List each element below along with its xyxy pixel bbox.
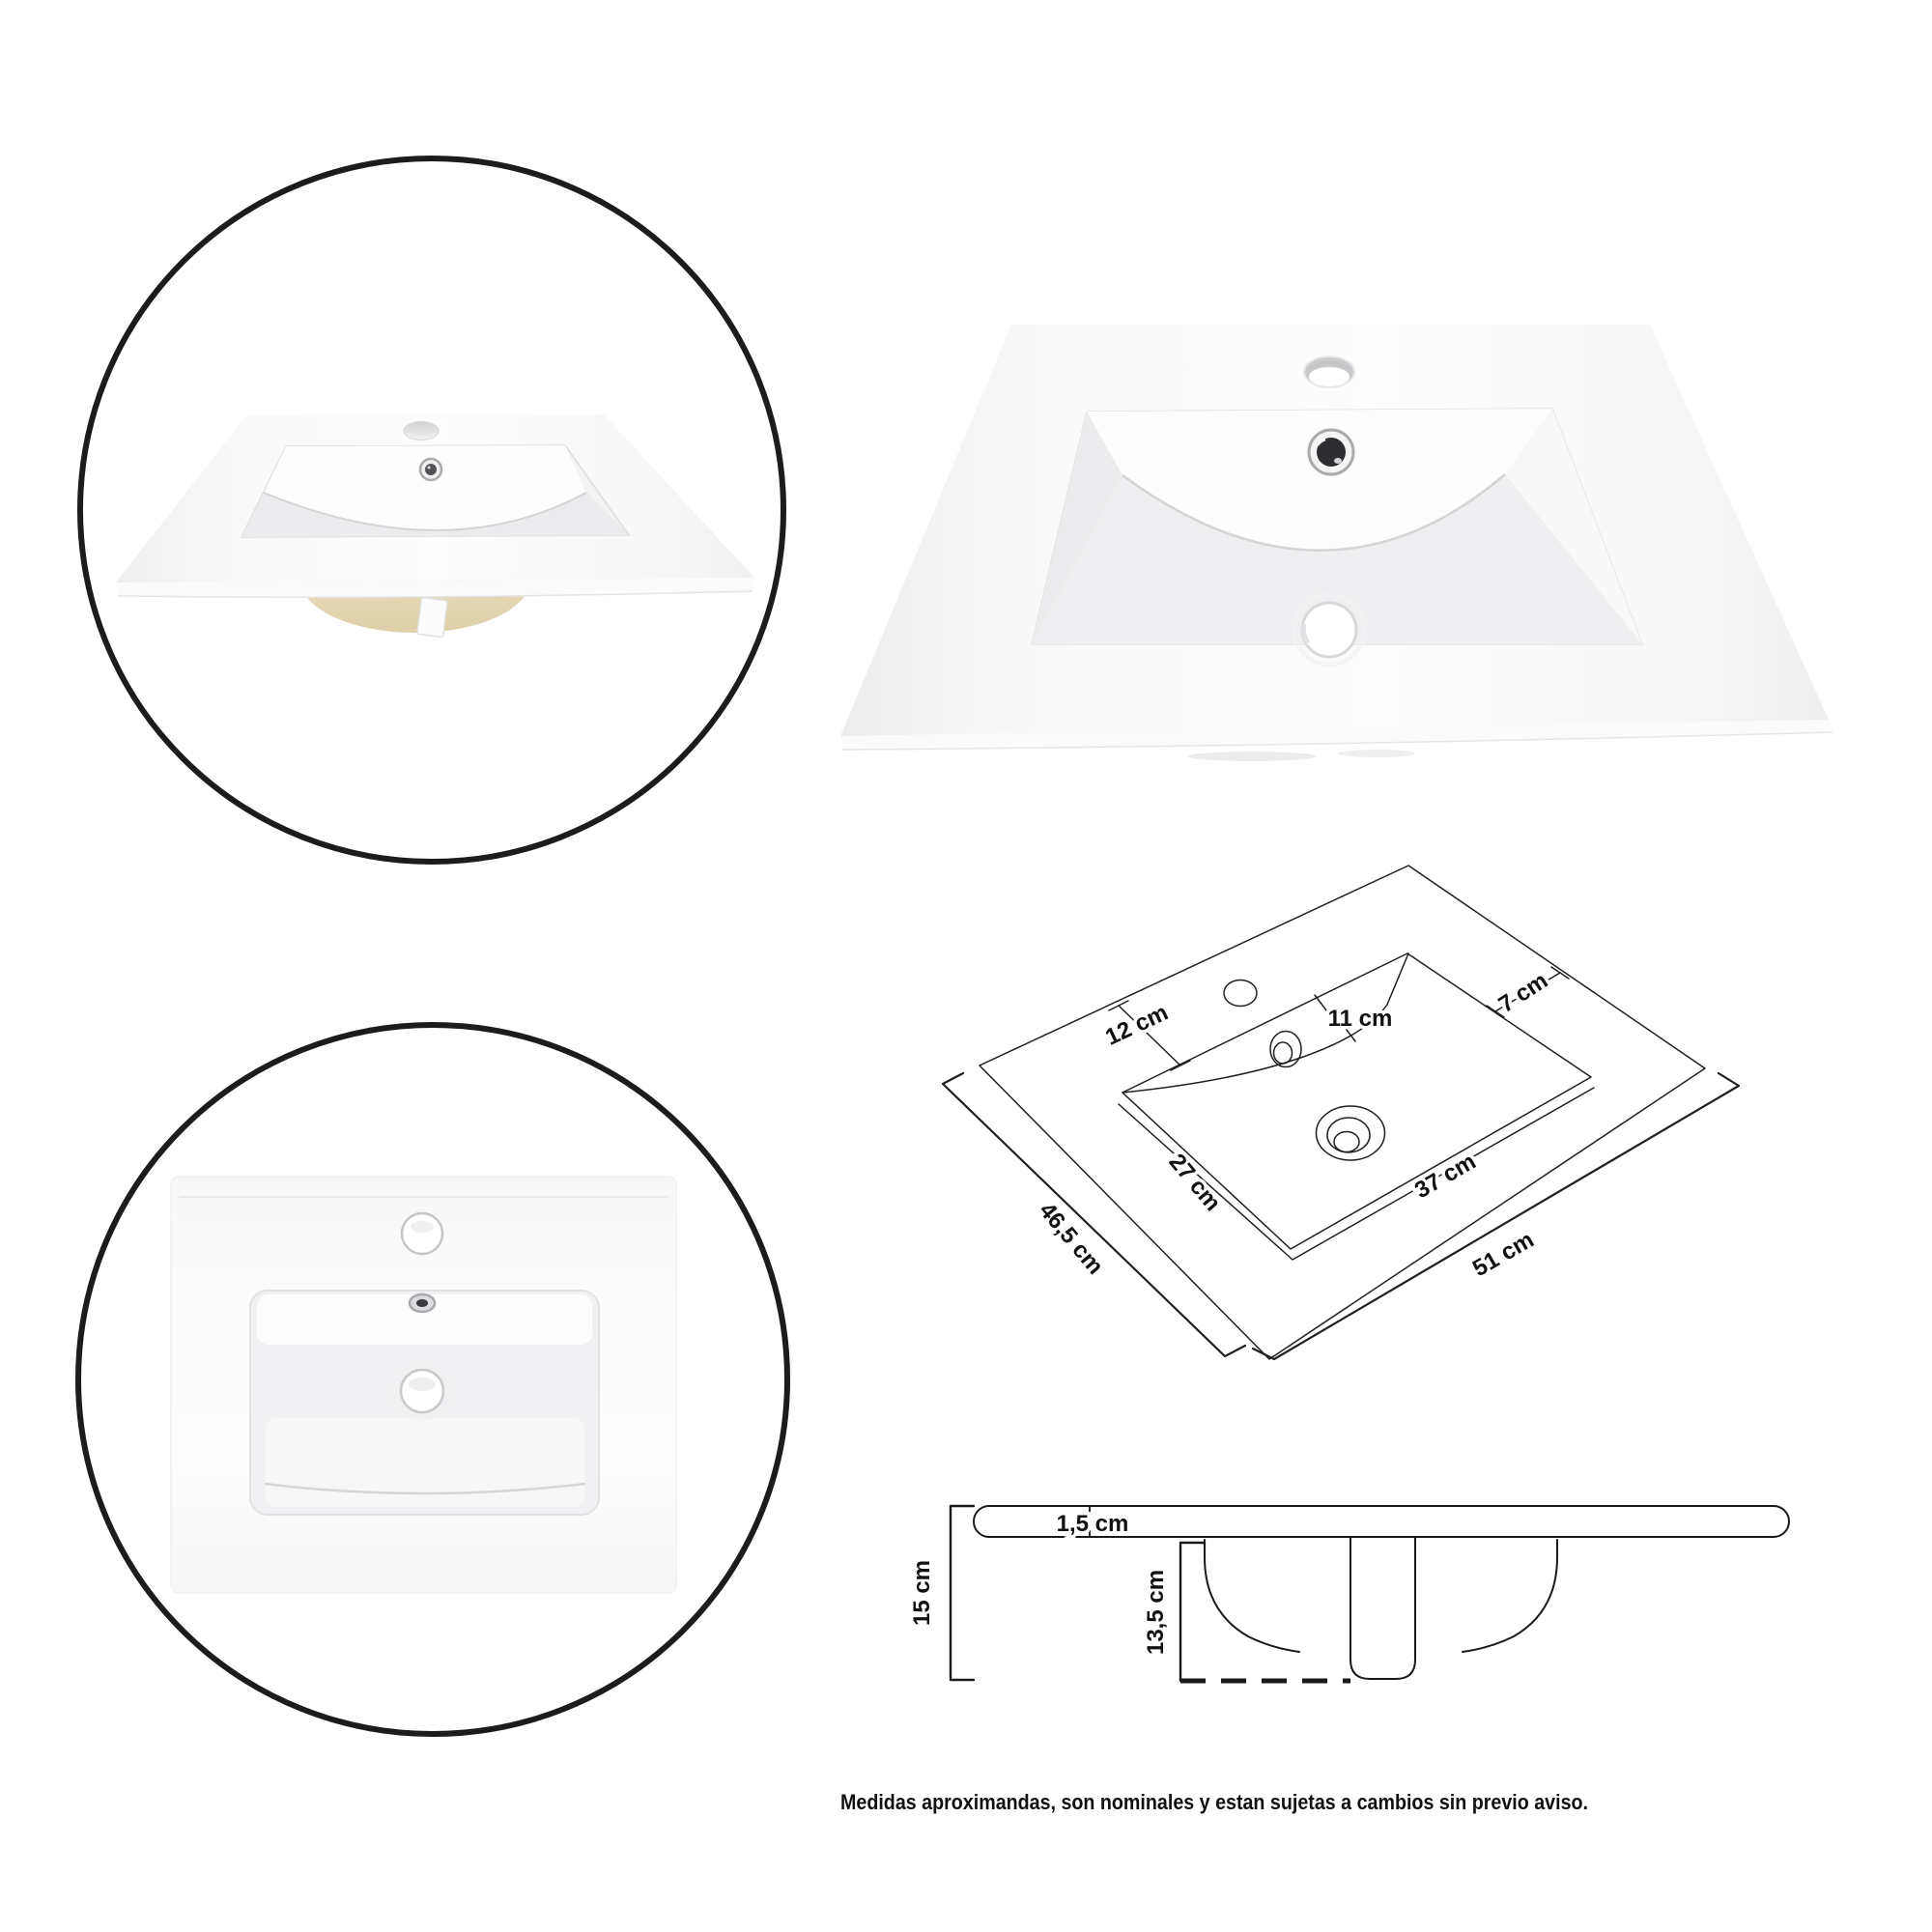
svg-text:11 cm: 11 cm xyxy=(1328,1006,1393,1032)
svg-text:Medidas aproximandas, son nomi: Medidas aproximandas, son nominales y es… xyxy=(840,1790,1588,1814)
svg-text:1,5 cm: 1,5 cm xyxy=(1057,1511,1129,1537)
svg-text:13,5 cm: 13,5 cm xyxy=(1143,1570,1169,1655)
svg-text:15 cm: 15 cm xyxy=(909,1560,935,1626)
